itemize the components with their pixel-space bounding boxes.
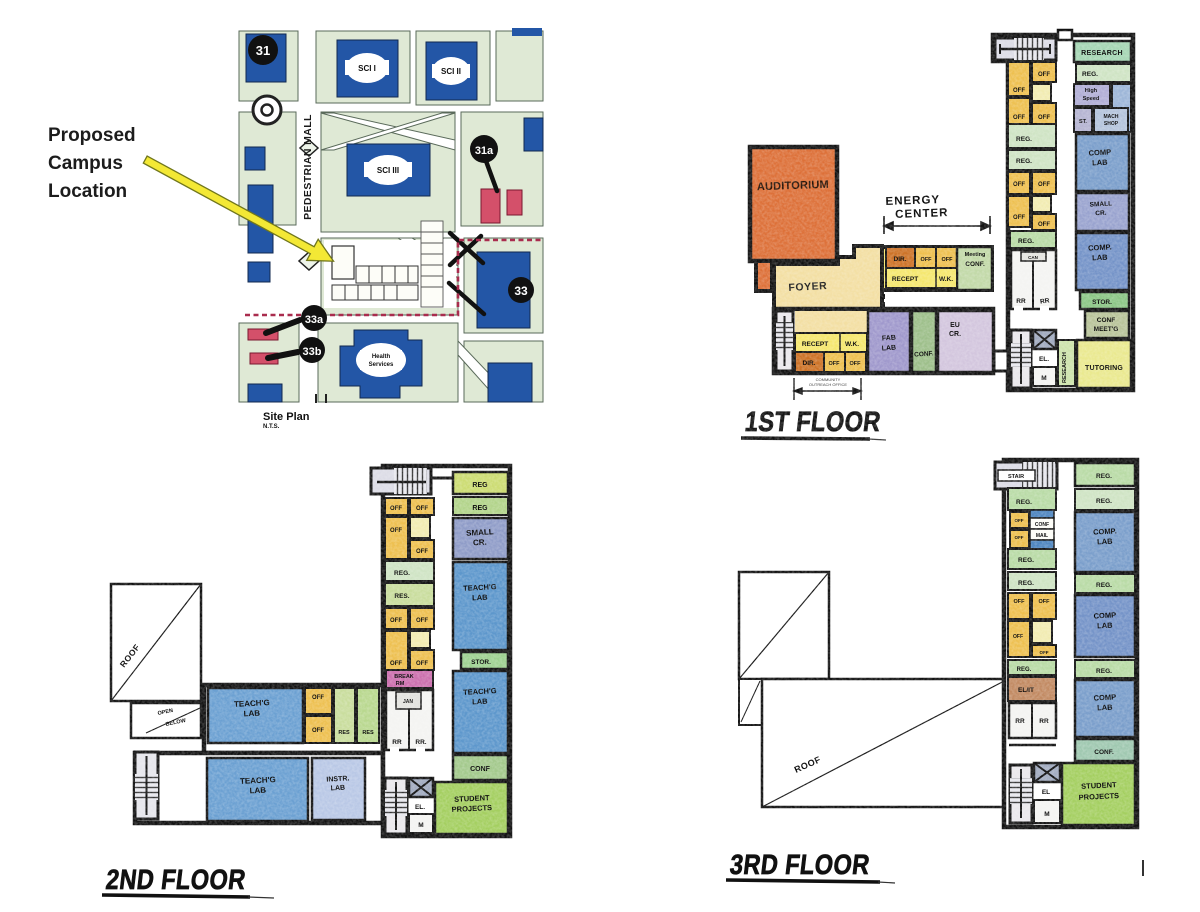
svg-text:SCI I: SCI I [358, 64, 376, 73]
svg-text:2ND FLOOR: 2ND FLOOR [104, 863, 247, 895]
svg-text:Location: Location [48, 181, 127, 202]
svg-text:Proposed: Proposed [48, 125, 136, 146]
svg-text:Services: Services [369, 362, 394, 368]
svg-text:SCI III: SCI III [377, 166, 399, 175]
svg-text:Site Plan: Site Plan [263, 411, 310, 423]
svg-text:31a: 31a [475, 145, 494, 157]
svg-text:31: 31 [256, 43, 270, 58]
svg-text:Campus: Campus [48, 153, 123, 174]
svg-text:N.T.S.: N.T.S. [263, 424, 280, 430]
svg-text:SCI II: SCI II [441, 67, 461, 76]
svg-text:33a: 33a [305, 314, 324, 326]
svg-text:3RD FLOOR: 3RD FLOOR [728, 848, 871, 880]
svg-text:PEDESTRIAN MALL: PEDESTRIAN MALL [302, 114, 314, 220]
svg-text:33: 33 [514, 284, 528, 298]
svg-text:33b: 33b [303, 346, 322, 358]
svg-text:Health: Health [372, 354, 391, 360]
